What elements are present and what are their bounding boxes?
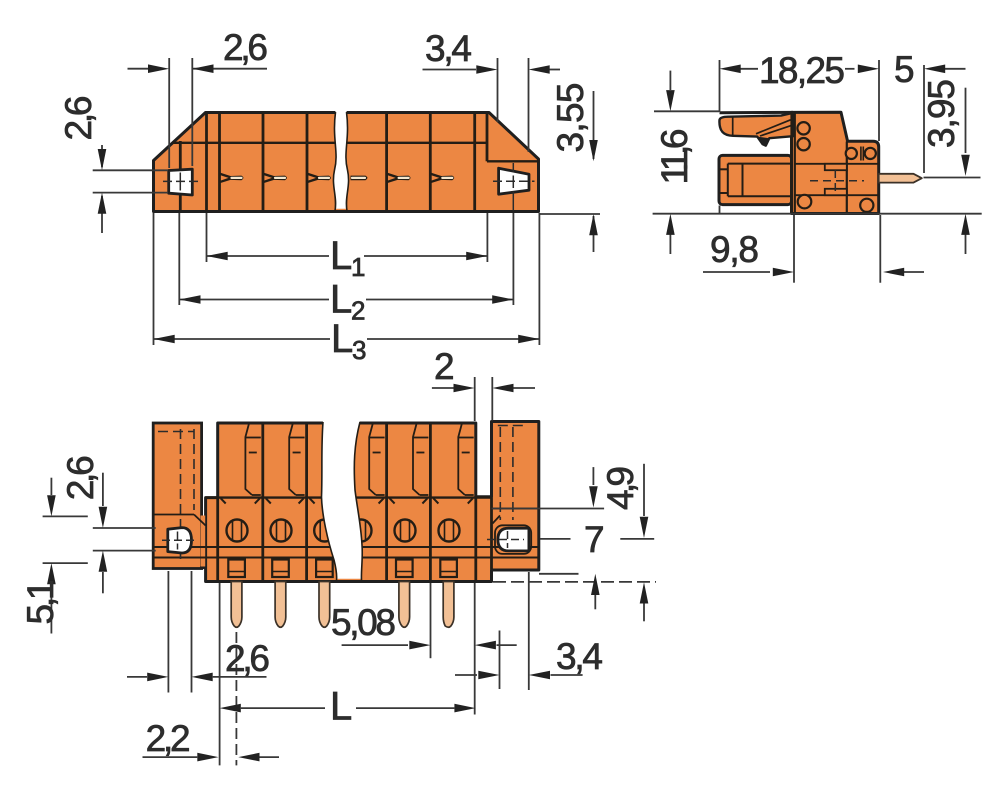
svg-text:11,6: 11,6	[654, 129, 695, 185]
svg-text:2,6: 2,6	[223, 27, 268, 68]
svg-text:3,55: 3,55	[550, 83, 591, 153]
svg-text:L: L	[330, 234, 352, 278]
svg-text:2,6: 2,6	[58, 96, 99, 141]
svg-text:5,08: 5,08	[331, 602, 396, 643]
svg-text:3,4: 3,4	[425, 28, 472, 69]
svg-text:3,95: 3,95	[921, 79, 962, 148]
svg-text:L: L	[330, 278, 352, 322]
svg-text:3,4: 3,4	[556, 636, 603, 677]
svg-text:18,25: 18,25	[759, 50, 845, 91]
svg-text:L: L	[330, 685, 352, 729]
svg-text:4,9: 4,9	[600, 466, 641, 510]
svg-text:5: 5	[894, 49, 915, 90]
svg-text:2,6: 2,6	[60, 455, 101, 500]
svg-text:5,1: 5,1	[20, 580, 61, 625]
svg-text:2,6: 2,6	[225, 638, 270, 679]
svg-text:1: 1	[351, 252, 365, 282]
svg-text:7: 7	[584, 519, 605, 560]
svg-text:2,2: 2,2	[146, 718, 191, 759]
svg-text:2: 2	[434, 346, 455, 387]
svg-text:3: 3	[352, 335, 366, 365]
svg-text:L: L	[331, 317, 353, 361]
svg-text:9,8: 9,8	[710, 229, 759, 270]
